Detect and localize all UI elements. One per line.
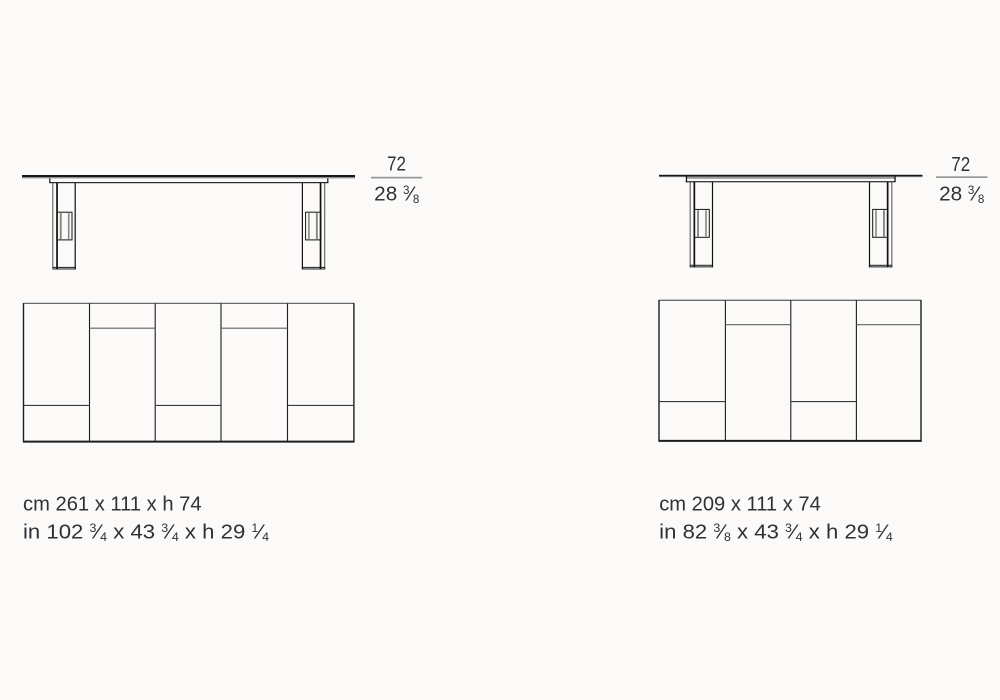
svg-text:28 3⁄8: 28 3⁄8 bbox=[939, 183, 984, 206]
svg-text:cm 209 x 111 x 74: cm 209 x 111 x 74 bbox=[659, 493, 821, 516]
svg-text:in 82 3⁄8 x 43 3⁄4 x h 29 1⁄4: in 82 3⁄8 x 43 3⁄4 x h 29 1⁄4 bbox=[659, 521, 893, 544]
svg-text:72: 72 bbox=[387, 153, 406, 176]
svg-text:28 3⁄8: 28 3⁄8 bbox=[374, 183, 419, 206]
svg-text:cm 261 x 111 x h 74: cm 261 x 111 x h 74 bbox=[23, 493, 202, 516]
svg-text:72: 72 bbox=[951, 153, 970, 176]
svg-text:in 102 3⁄4 x 43 3⁄4 x h 29 1⁄4: in 102 3⁄4 x 43 3⁄4 x h 29 1⁄4 bbox=[23, 521, 270, 544]
